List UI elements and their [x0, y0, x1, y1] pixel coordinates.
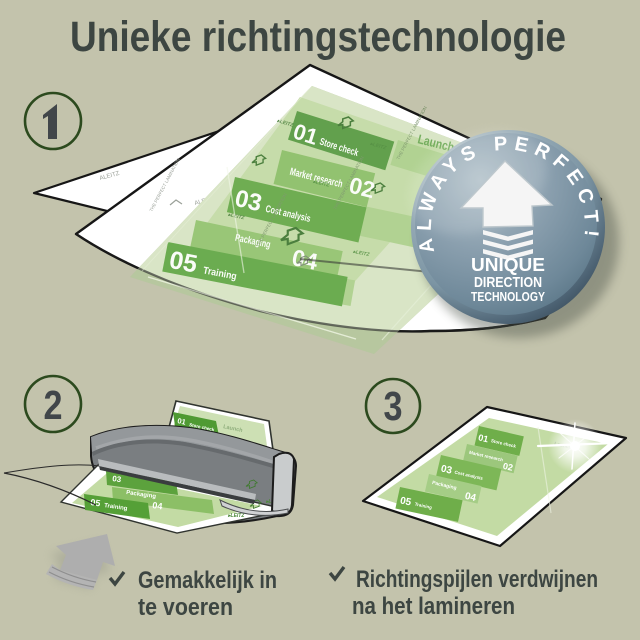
- svg-text:03: 03: [112, 474, 123, 484]
- svg-text:2: 2: [44, 382, 63, 428]
- svg-text:na het lamineren: na het lamineren: [352, 593, 515, 620]
- svg-text:▸LEITZ: ▸LEITZ: [227, 513, 245, 519]
- svg-text:3: 3: [384, 383, 403, 429]
- svg-text:Richtingspijlen verdwijnen: Richtingspijlen verdwijnen: [356, 566, 598, 593]
- svg-text:TECHNOLOGY: TECHNOLOGY: [471, 289, 545, 304]
- svg-text:04: 04: [152, 500, 163, 511]
- svg-text:te voeren: te voeren: [138, 594, 233, 621]
- svg-text:Gemakkelijk in: Gemakkelijk in: [138, 567, 277, 594]
- svg-text:UNIQUE: UNIQUE: [471, 255, 545, 275]
- svg-text:Unieke richtingstechnologie: Unieke richtingstechnologie: [70, 13, 566, 61]
